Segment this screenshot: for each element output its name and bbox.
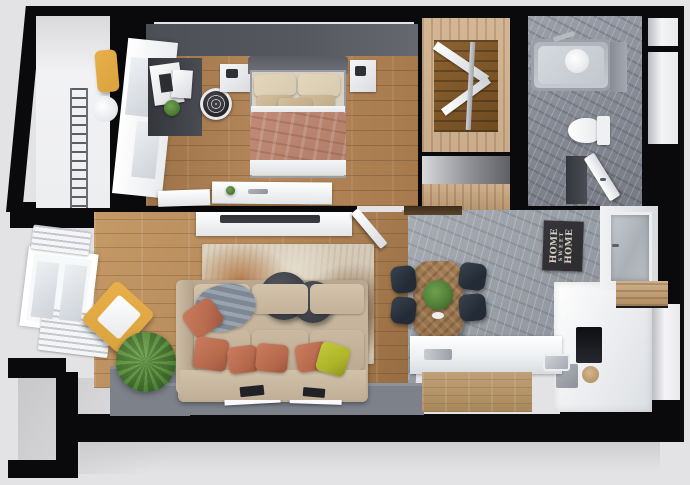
floor-threshold (404, 206, 462, 215)
desk-frame-2 (171, 69, 193, 98)
bed-pillow-right (298, 73, 341, 96)
dining-chair-4 (458, 293, 487, 322)
kitchen-wood-bowl (582, 366, 599, 383)
right-niche-middle (648, 52, 678, 144)
right-niche-lower (652, 304, 680, 400)
exterior-shadow-bottom (80, 436, 660, 478)
balcony-pouf (92, 96, 118, 122)
bathroom-door-handle (600, 178, 606, 181)
tv (220, 215, 320, 223)
sideboard-decor (248, 189, 268, 194)
bathtub-drain-light (565, 49, 589, 73)
balcony-chair (94, 49, 120, 93)
sofa-back-cushion-3 (310, 284, 364, 314)
sofa-pillow-3 (226, 344, 259, 374)
entry-bench-shelf (616, 281, 668, 306)
entry-door-handle (612, 244, 619, 247)
apartment-floorplan-render: HOME SWEET HOME (0, 0, 690, 485)
kitchen-sink (543, 354, 570, 371)
sofa-back-cushion-2 (252, 284, 308, 314)
desk-frame-art (159, 73, 173, 92)
right-niche-top (648, 18, 678, 46)
hall-niche-opening (422, 156, 510, 184)
balcony-railing (70, 88, 88, 208)
bed-blanket (250, 112, 346, 162)
home-sweet-home-poster: HOME SWEET HOME (542, 220, 584, 271)
nightstand-right-decor (355, 66, 366, 76)
bathtub-side-panel (610, 42, 627, 92)
home-poster-line3: HOME (565, 229, 576, 264)
bedroom-shelf-left (158, 189, 211, 207)
built-in-oven (576, 327, 602, 363)
floor-poster-2-art (303, 387, 326, 398)
sofa-pillow-4 (255, 343, 289, 374)
dining-chair-2 (390, 296, 418, 325)
nightstand-right (350, 60, 376, 92)
sideboard-plant (226, 186, 235, 195)
bathroom-cabinet (566, 156, 587, 204)
wall-step-c (8, 460, 78, 478)
desk-plant (164, 100, 180, 116)
home-poster-text: HOME SWEET HOME (550, 228, 575, 264)
entry-door (608, 212, 652, 284)
laundry-basket (200, 88, 232, 120)
dining-chair-3 (457, 261, 487, 291)
nightstand-left-decor (226, 69, 238, 78)
living-plant (116, 332, 176, 392)
kitchen-cabinet-front (422, 372, 532, 412)
bed-foot-fold (250, 160, 346, 175)
dining-chair-1 (390, 265, 418, 294)
toilet-tank (597, 116, 610, 145)
kitchen-hob (424, 349, 452, 360)
dining-centerpiece-plant (423, 280, 453, 310)
bed-pillow-left (253, 73, 296, 97)
sofa-pillow-2 (192, 336, 230, 372)
dining-dish (432, 312, 444, 319)
